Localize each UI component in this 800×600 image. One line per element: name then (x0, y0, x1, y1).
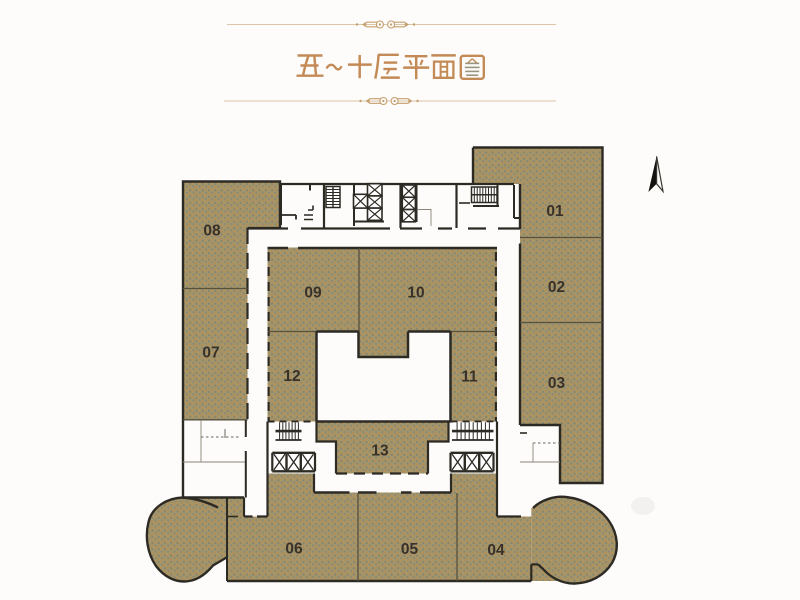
svg-text:12: 12 (283, 368, 300, 385)
svg-text:09: 09 (304, 285, 322, 302)
svg-text:10: 10 (407, 285, 424, 302)
svg-text:08: 08 (203, 223, 221, 240)
svg-text:05: 05 (401, 541, 419, 558)
svg-text:03: 03 (548, 375, 566, 392)
svg-text:07: 07 (202, 345, 219, 362)
svg-text:04: 04 (487, 542, 505, 559)
svg-text:06: 06 (285, 541, 303, 558)
svg-text:02: 02 (548, 279, 565, 296)
svg-text:01: 01 (546, 203, 564, 220)
svg-text:13: 13 (371, 443, 389, 460)
svg-text:11: 11 (461, 369, 478, 386)
